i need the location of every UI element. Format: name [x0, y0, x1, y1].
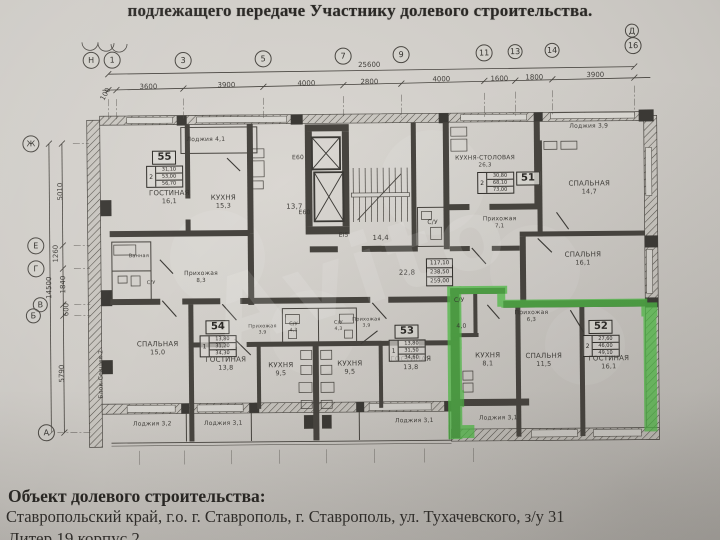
stamp-area-value: 73,00: [487, 187, 513, 193]
room-label: Прихожая3,9: [352, 317, 380, 328]
dimension-label: 600: [62, 303, 70, 316]
room-label: Лоджия 3,1: [479, 415, 518, 422]
axis-bubble: Н: [83, 52, 100, 69]
axis-bubble: Е: [27, 237, 44, 254]
floor-total-value: 238,50: [427, 268, 452, 277]
dimension-label: 4000: [432, 75, 450, 83]
room-label: СПАЛЬНАЯ15,0: [137, 341, 179, 356]
stamp-number: 55: [152, 151, 176, 165]
room-label: С/У4,3: [334, 321, 343, 332]
plan-labels-layer: Лоджия 4,1ГОСТИНАЯ16,1КУХНЯ15,3КУХНЯ-СТО…: [0, 0, 720, 540]
dimension-label: 1600: [490, 75, 508, 83]
stamp-areas-table: 113,8031,5034,60: [389, 339, 426, 361]
axis-bubble: 13: [508, 44, 523, 59]
apartment-stamp: 53113,8031,5034,60: [388, 324, 425, 361]
room-label: 14,4: [372, 235, 388, 243]
dimension-label: 100: [99, 86, 113, 102]
stamp-rooms-count: 2: [147, 167, 156, 187]
room-label: Блок-Секция 2: [98, 350, 105, 399]
stamp-rooms-count: 2: [584, 336, 593, 356]
dimension-label: 3600: [139, 83, 157, 91]
stamp-number: 54: [206, 320, 230, 334]
stamp-area-rows: 13,8031,5034,60: [398, 340, 424, 360]
room-label: Лоджия 3,2: [133, 421, 172, 428]
stamp-area-rows: 27,6046,0049,10: [592, 336, 618, 356]
dimension-label: 14500: [45, 277, 53, 299]
room-label: С/У: [147, 281, 156, 287]
dimension-label: 1840: [59, 276, 67, 294]
axis-bubble: 1: [104, 52, 121, 69]
room-label: С/У4,3: [289, 322, 298, 333]
stamp-rooms-count: 1: [201, 336, 210, 356]
room-label: Е60: [298, 210, 310, 217]
room-label: С/У: [427, 220, 438, 227]
axis-bubble: Б: [26, 308, 41, 323]
axis-bubble: 14: [545, 43, 560, 58]
room-label: СПАЛЬНЯ16,1: [565, 251, 602, 266]
room-label: ГОСТИНАЯ13,8: [205, 356, 246, 371]
stamp-areas-table: 227,6046,0049,10: [583, 335, 620, 357]
room-label: Ванная: [129, 254, 149, 260]
stamp-rooms-count: 1: [390, 341, 399, 361]
room-label: С/У: [454, 298, 465, 305]
room-label: Е60: [292, 155, 304, 162]
dimension-label: 1800: [525, 73, 543, 81]
room-label: ГОСТИНАЯ16,1: [588, 355, 629, 370]
room-label: КУХНЯ-СТОЛОВАЯ26,3: [455, 155, 515, 168]
axis-bubble: Г: [27, 260, 44, 277]
stamp-rooms-count: 2: [478, 173, 487, 193]
dimension-label: 2800: [360, 78, 378, 86]
room-label: КУХНЯ9,5: [337, 360, 362, 375]
room-label: Прихожая3,9: [248, 324, 276, 335]
floor-total-value: 259,00: [427, 277, 452, 285]
stamp-area-rows: 13,8031,2034,30: [209, 336, 235, 356]
floor-total-value: 117,10: [427, 259, 452, 268]
room-label: Прихожая6,3: [514, 310, 548, 323]
stamp-number: 53: [395, 324, 419, 338]
dimension-label: 25600: [358, 61, 380, 69]
stamp-area-value: 34,30: [210, 350, 236, 356]
room-label: КУХНЯ9,5: [268, 362, 293, 377]
room-label: Лоджия 3,1: [204, 421, 243, 428]
apartment-stamp: 55231,1053,0056,70: [146, 151, 183, 188]
stamp-area-value: 34,60: [399, 354, 425, 360]
dimension-label: 4000: [297, 79, 315, 87]
apartment-stamp: 51230,8068,1073,00: [477, 171, 540, 194]
axis-bubble: 11: [476, 44, 493, 61]
room-label: Лоджия 4,1: [186, 137, 225, 144]
room-label: СПАЛЬНАЯ14,7: [568, 180, 610, 195]
stamp-area-value: 49,10: [593, 350, 619, 356]
room-label: 4,0: [456, 324, 466, 331]
photographed-floorplan-page: подлежащего передаче Участнику долевого …: [0, 0, 720, 540]
stamp-area-rows: 31,1053,0056,70: [156, 167, 182, 187]
axis-bubble: 7: [335, 48, 352, 65]
room-label: СПАЛЬНЯ11,5: [525, 353, 562, 368]
axis-bubble: 16: [624, 37, 641, 54]
dimension-label: 5010: [56, 183, 64, 201]
floor-totals-stamp: 117,10238,50259,00: [426, 258, 453, 286]
room-label: Лоджия 3,9: [569, 123, 608, 130]
room-label: КУХНЯ15,3: [211, 195, 236, 210]
stamp-areas-table: 231,1053,0056,70: [146, 166, 183, 188]
stamp-area-value: 56,70: [156, 181, 182, 187]
axis-bubble: 5: [255, 50, 272, 67]
footer-address: Ставропольский край, г.о. г. Ставрополь,…: [6, 507, 565, 527]
apartment-stamp: 54113,8031,2034,30: [199, 320, 236, 357]
apartment-stamp: 52227,6046,0049,10: [582, 320, 619, 357]
stamp-number: 51: [516, 171, 540, 185]
room-label: 22,8: [399, 270, 415, 278]
stamp-areas-table: 230,8068,1073,00: [477, 172, 514, 194]
footer-cut-line: Литер 19 корпус 2: [8, 529, 140, 540]
room-label: КУХНЯ8,1: [475, 352, 500, 367]
axis-bubble: А: [38, 424, 55, 441]
room-label: ЕI5: [339, 233, 349, 240]
dimension-label: 5790: [58, 365, 66, 383]
dimension-label: 3900: [217, 81, 235, 89]
stamp-area-rows: 30,8068,1073,00: [487, 173, 513, 193]
room-label: Прихожая8,3: [184, 271, 218, 284]
dimension-label: 1260: [52, 245, 60, 263]
dimension-label: 3900: [586, 71, 604, 79]
room-label: ГОСТИНАЯ16,1: [149, 190, 190, 205]
footer-title: Объект долевого строительства:: [8, 486, 266, 507]
stamp-number: 52: [589, 320, 613, 334]
axis-bubble: Д: [625, 24, 639, 38]
stamp-areas-table: 113,8031,2034,30: [200, 335, 237, 357]
axis-bubble: Ж: [22, 135, 39, 152]
axis-bubble: 3: [175, 52, 192, 69]
room-label: Прихожая7,1: [483, 216, 517, 229]
floor-plan-drawing: Лоджия 4,1ГОСТИНАЯ16,1КУХНЯ15,3КУХНЯ-СТО…: [0, 0, 720, 540]
axis-bubble: 9: [393, 46, 410, 63]
room-label: Лоджия 3,1: [395, 418, 434, 425]
